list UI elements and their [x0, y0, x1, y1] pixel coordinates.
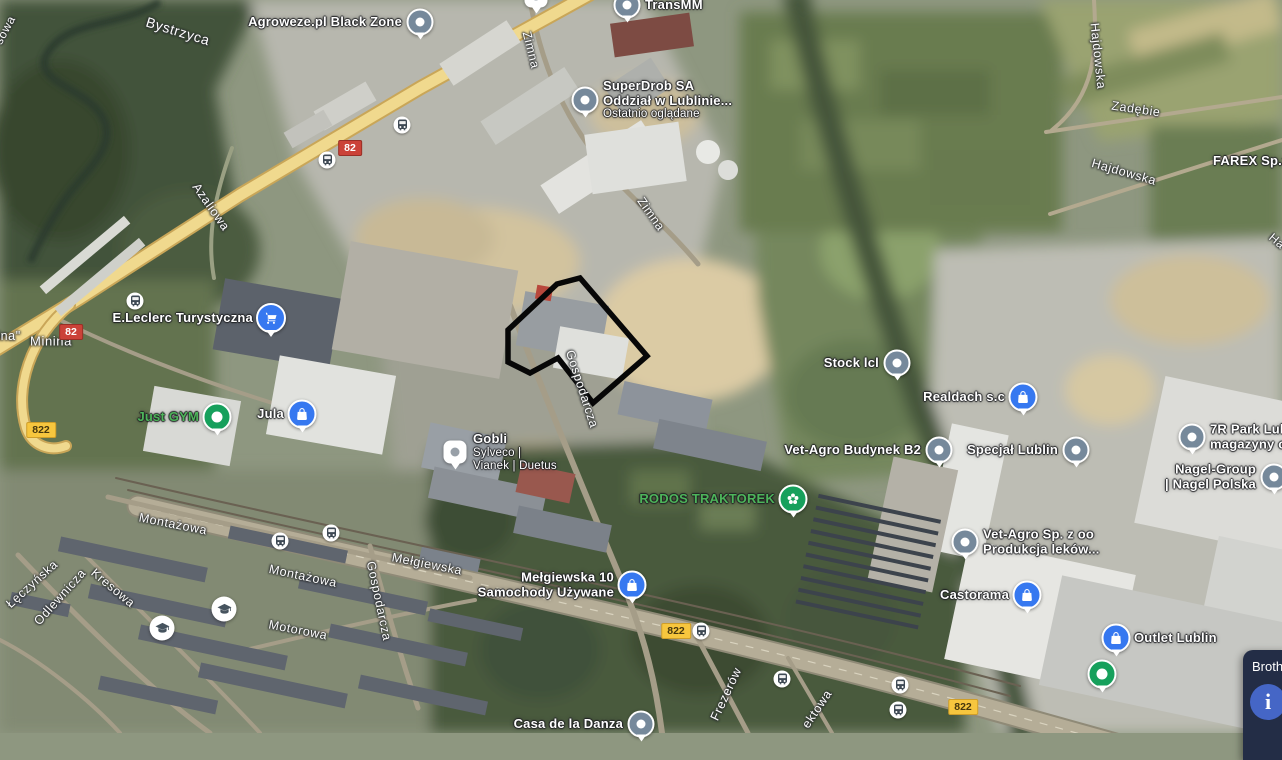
gray-pin-icon[interactable] [407, 9, 434, 36]
bus-stop-icon[interactable] [774, 671, 791, 688]
green-dot-pin-icon[interactable] [203, 403, 232, 432]
road-shield-822: 822 [661, 623, 691, 639]
bus-stop-icon[interactable] [319, 152, 336, 169]
school-icon[interactable] [212, 597, 237, 622]
poi-label-agroweze[interactable]: Agroweze.pl Black Zone [248, 15, 402, 30]
gray-pin-icon[interactable] [614, 0, 641, 19]
street-label-ina-: ina" [0, 329, 21, 343]
gray-pin-icon[interactable] [884, 350, 911, 377]
bus-stop-icon[interactable] [394, 117, 411, 134]
poi-label-gobli[interactable]: GobliSylveco |Vianek | Duetus [473, 432, 557, 473]
satellite-map[interactable]: Agroweze.pl Black ZoneTransMMSuperDrob S… [0, 0, 1282, 733]
school-icon[interactable] [150, 616, 175, 641]
blue-bag-pin-icon[interactable] [1009, 383, 1038, 412]
gray-pin-icon[interactable] [1261, 464, 1282, 491]
street-label-hajdowska: Hajdowska [1088, 22, 1109, 90]
poi-label-nagel-group[interactable]: Nagel-Group| Nagel Polska [1165, 463, 1256, 492]
street-label-frezer-w: Frezerów [708, 665, 745, 722]
poi-label-stock-lcl[interactable]: Stock lcl [824, 356, 879, 371]
info-icon[interactable]: i [1250, 684, 1282, 720]
gray-pin-icon[interactable] [952, 529, 979, 556]
road-shield-82: 82 [59, 324, 83, 340]
poi-label-vet-agro-sp[interactable]: Vet-Agro Sp. z ooProdukcja leków... [983, 528, 1100, 557]
poi-label-just-gym[interactable]: Just GYM [137, 410, 199, 425]
street-label-monta-owa: Montażowa [138, 511, 209, 538]
street-label-hajdowska: Hajdowska [1090, 156, 1158, 188]
poi-label-eleclerc[interactable]: E.Leclerc Turystyczna [112, 311, 253, 326]
road-shield-82: 82 [338, 140, 362, 156]
poi-label-rodos-traktorek[interactable]: RODOS TRAKTOREK [639, 492, 775, 507]
bus-stop-icon[interactable] [127, 293, 144, 310]
street-label-me-giewska: Mełgiewska [391, 550, 464, 577]
bus-stop-icon[interactable] [272, 533, 289, 550]
blue-cart-pin-icon[interactable] [256, 303, 286, 333]
street-label-sowa: sowa [0, 13, 18, 46]
gray-pin-icon[interactable] [926, 437, 953, 464]
poi-label-outlet-lublin[interactable]: Outlet Lublin [1134, 631, 1217, 646]
poi-label-7r-park[interactable]: 7R Park Lubmagazyny o [1210, 423, 1282, 452]
white-square-pin-icon[interactable] [444, 441, 467, 464]
poi-label-realdach[interactable]: Realdach s.c [923, 390, 1005, 405]
green-flower-pin-icon[interactable] [779, 485, 808, 514]
street-label-gospodarcza: Gospodarcza [563, 348, 601, 429]
gray-pin-icon[interactable] [628, 711, 655, 738]
blue-bag-pin-icon[interactable] [288, 400, 317, 429]
bus-stop-icon[interactable] [890, 702, 907, 719]
blue-bag-pin-icon[interactable] [1013, 581, 1042, 610]
gray-pin-icon[interactable] [1063, 437, 1090, 464]
white-square-pin-icon[interactable] [525, 0, 548, 8]
bus-stop-icon[interactable] [693, 623, 710, 640]
street-label-bystrzyca: Bystrzyca [144, 14, 212, 49]
blue-bag-pin-icon[interactable] [618, 571, 647, 600]
poi-label-jula[interactable]: Jula [257, 407, 284, 422]
road-shield-822: 822 [26, 422, 56, 438]
poi-label-transmm[interactable]: TransMM [645, 0, 703, 12]
green-dot-pin-icon[interactable] [1088, 660, 1117, 689]
map-overlay: Agroweze.pl Black ZoneTransMMSuperDrob S… [0, 0, 1282, 733]
gray-pin-icon[interactable] [572, 87, 599, 114]
gray-pin-icon[interactable] [1179, 424, 1206, 451]
poi-label-castorama[interactable]: Castorama [940, 588, 1009, 603]
poi-label-specjal-lublin[interactable]: Specjał Lublin [967, 443, 1058, 458]
blue-bag-pin-icon[interactable] [1102, 624, 1131, 653]
street-label-monta-owa: Montażowa [268, 562, 339, 590]
street-label-zimna: Zimna [634, 195, 667, 234]
street-label-zimna: Zimna [520, 30, 543, 70]
poi-label-melgiewska-10[interactable]: Mełgiewska 10Samochody Używane [478, 571, 614, 600]
street-label-kresowa: Kresowa [88, 566, 137, 611]
poi-label-casa-de-la-danza[interactable]: Casa de la Danza [514, 717, 623, 732]
street-label-gospodarcza: Gospodarcza [364, 560, 395, 642]
street-label-ha: Ha [1266, 230, 1282, 251]
street-label-motorowa: Motorowa [267, 617, 328, 642]
street-label-ektowa: ektowa [799, 687, 835, 731]
street-label-zad-bie: Zadębie [1111, 99, 1162, 120]
street-label-azaliowa: Azaliowa [190, 181, 233, 234]
road-shield-822: 822 [948, 699, 978, 715]
poi-label-farex[interactable]: FAREX Sp.z [1213, 154, 1282, 169]
place-info-card[interactable]: Brothe i [1243, 650, 1282, 760]
place-info-title: Brothe [1243, 650, 1282, 674]
poi-label-superdrob[interactable]: SuperDrob SAOddział w Lublinie...Ostatni… [603, 79, 732, 121]
poi-label-vet-agro-b2[interactable]: Vet-Agro Budynek B2 [784, 443, 921, 458]
bus-stop-icon[interactable] [323, 525, 340, 542]
bus-stop-icon[interactable] [892, 677, 909, 694]
